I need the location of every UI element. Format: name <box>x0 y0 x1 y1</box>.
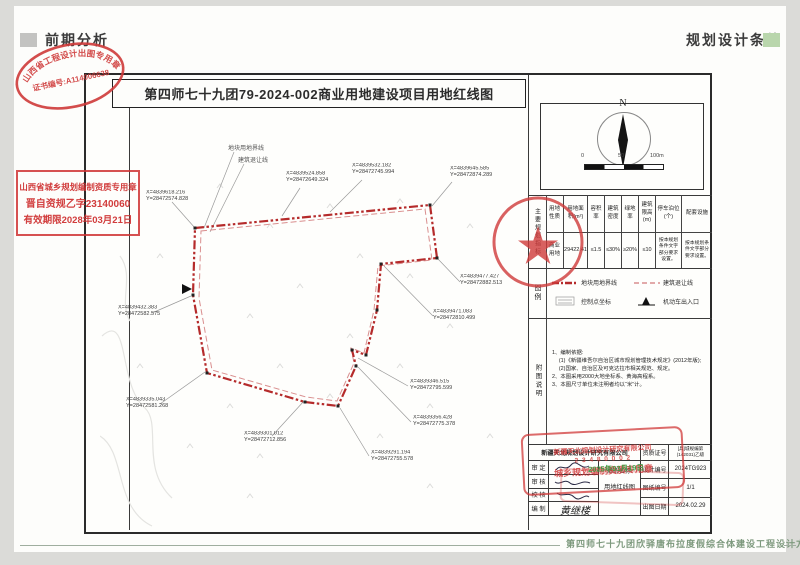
note-line: (2)国家、自治区及可克达拉市相关规范、规定。 <box>552 366 707 374</box>
header-right-square-icon <box>763 33 780 47</box>
notes-body: 1、编制依据: (1)《新疆维吾尔自治区城市规划管理技术规定》(2012年版);… <box>552 350 710 390</box>
table-header: 停车泊位(个) <box>656 195 682 232</box>
compass-needle-icon <box>597 106 649 170</box>
scale-tick-100: 100m <box>650 153 664 159</box>
footer-project-title: 第四师七十九团欣驿唐布拉度假综合体建设工程设计方案 <box>566 537 800 550</box>
drawing-title: 第四师七十九团79-2024-002商业用地建设项目用地红线图 <box>144 84 493 103</box>
oval-stamp-cert-no: 证书编号:A114006638 <box>32 67 111 93</box>
coord-label: X=4839524.858Y=28472649.324 <box>286 171 328 184</box>
table-header: 建筑限高(m) <box>639 195 656 232</box>
vehicle-entrance-arrow <box>182 284 192 294</box>
footer-rule-right <box>784 545 796 546</box>
left-qualification-stamp: 山西省城乡规划编制资质专用章 晋自资规乙字23140060 有效期限2028年0… <box>16 170 140 236</box>
table-cell: ≥20% <box>622 233 639 268</box>
coord-label: X=4839356.428Y=28472775.378 <box>413 415 455 428</box>
setback-line-swatch <box>634 280 660 286</box>
table-cell: ≤30% <box>605 233 622 268</box>
note-line: 2、本图采用2000大地坐标系、黄海高程系。 <box>552 374 707 382</box>
notes-section-label: 附图说明 <box>528 318 547 444</box>
legend-item: 控制点坐标 <box>552 296 611 306</box>
legend-label: 地块用地界线 <box>581 278 617 287</box>
page-edge-top <box>0 0 800 6</box>
round-official-seal <box>490 194 586 290</box>
page-edge-bottom <box>0 552 800 565</box>
table-cell: ≤10 <box>639 233 656 268</box>
coord-label: X=4839432.383Y=28472582.575 <box>118 305 160 318</box>
table-cell: 按本规划条件文字部分要求设置。 <box>682 233 712 268</box>
legend-label: 机动车出入口 <box>663 297 699 306</box>
plot-boundary-line <box>193 205 437 406</box>
coord-label: X=4839291.194Y=28472755.578 <box>371 450 413 463</box>
vegetation-symbols <box>137 184 493 498</box>
drawing-title-box: 第四师七十九团79-2024-002商业用地建设项目用地红线图 <box>112 79 526 108</box>
table-header: 绿地率 <box>622 195 639 232</box>
control-point-swatch <box>552 296 578 306</box>
table-cell: ≤1.5 <box>588 233 605 268</box>
coord-label: X=4839301.012Y=28472712.856 <box>244 431 286 444</box>
page-edge-right <box>786 0 800 565</box>
note-line: 3、本图尺寸单位未注明者均以“米”计。 <box>552 382 707 390</box>
scale-bar <box>584 164 664 170</box>
note-line: 1、编制依据: <box>552 350 707 358</box>
legend-item: 机动车出入口 <box>634 296 699 306</box>
terrain-contours <box>100 256 172 526</box>
maker-label: 编 制 <box>529 501 548 515</box>
setback-annotation: 建筑退让线 <box>238 155 268 164</box>
stamp-line: 山西省城乡规划编制资质专用章 <box>18 181 138 193</box>
entrance-arrow-swatch <box>634 296 660 306</box>
stamp-line: 晋自资规乙字23140060 <box>18 195 138 210</box>
scale-tick-0: 0 <box>581 153 584 159</box>
note-line: (1)《新疆维吾尔自治区城市规划管理技术规定》(2012年版); <box>552 358 707 366</box>
coord-label: X=4839645.585Y=28472874.289 <box>450 166 492 179</box>
site-map: 地块用地界线 建筑退让线 X=4839618.216Y=28472574.828… <box>100 106 528 532</box>
scale-tick-50: 50 <box>618 153 624 159</box>
coord-label: X=4839471.083Y=28472810.499 <box>433 309 475 322</box>
leader-lines <box>152 152 460 456</box>
coord-label: X=4839618.216Y=28472574.828 <box>146 190 188 203</box>
table-header: 配套设施 <box>682 195 712 232</box>
notes-top-line <box>529 318 712 319</box>
boundary-annotation: 地块用地界线 <box>228 143 264 152</box>
table-header: 建筑密度 <box>605 195 622 232</box>
scanned-planning-drawing-page: { "header": { "left_tag": "前期分析", "right… <box>0 0 800 565</box>
boundary-vertex-markers <box>192 204 439 408</box>
footer-rule-left <box>20 545 560 546</box>
maker-signature: 黄继楼 <box>554 502 596 517</box>
table-header: 容积率 <box>588 195 605 232</box>
coord-label: X=4839335.043Y=28472581.268 <box>126 397 168 410</box>
table-cell: 按本规划条件文字部分要求设置。 <box>656 233 682 268</box>
building-setback-line <box>199 209 432 401</box>
legend-item: 建筑退让线 <box>634 278 693 287</box>
green-date-stamp: 2025年03月19日 <box>588 462 644 475</box>
legend-label: 建筑退让线 <box>663 278 693 287</box>
stamp-line: 有效期限2028年03月21日 <box>18 212 138 226</box>
coord-label: X=4839532.182Y=28472745.994 <box>352 163 394 176</box>
coord-label: X=4839346.515Y=28472795.599 <box>410 379 452 392</box>
oval-certification-stamp: 山西省工程设计出图专用章 证书编号:A114006638 <box>6 36 134 116</box>
legend-label: 控制点坐标 <box>581 297 611 306</box>
